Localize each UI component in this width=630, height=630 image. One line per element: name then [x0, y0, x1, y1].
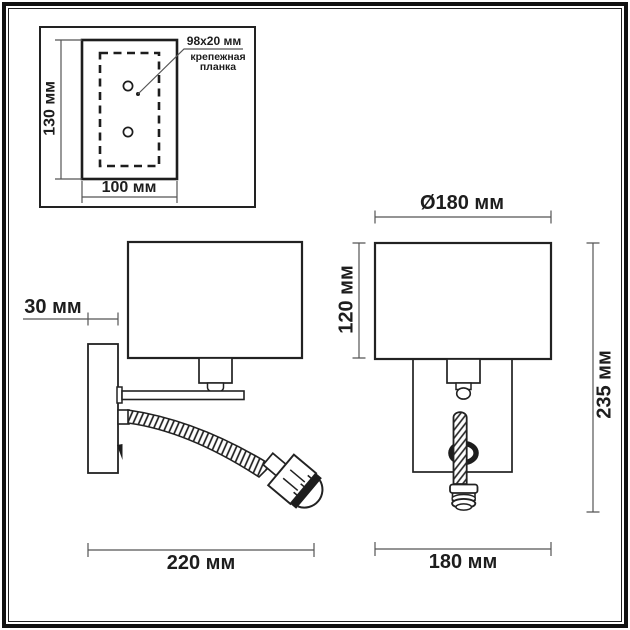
lamp-dimensional-drawing: 130 мм 100 мм 98x20 мм крепежная планка …	[0, 0, 630, 630]
socket-front	[447, 359, 480, 383]
mounting-plate-outline	[82, 40, 177, 179]
front-view-drawing	[375, 243, 551, 510]
shade-height-dimension-label: 120 мм	[337, 240, 358, 360]
gooseneck-rod-front	[454, 412, 467, 484]
arm-bar-side	[122, 391, 244, 400]
socket-side	[199, 358, 232, 383]
plate-depth-dimension-label: 30 мм	[0, 297, 113, 318]
switch-front	[457, 388, 471, 399]
total-height-dimension-label: 235 мм	[595, 325, 616, 445]
gooseneck-side	[128, 410, 271, 477]
wall-plate-side	[88, 344, 118, 473]
lampshade-side	[128, 242, 302, 358]
led-head-front	[450, 485, 478, 511]
total-depth-dimension-label: 220 мм	[141, 553, 261, 574]
lampshade-front	[375, 243, 551, 359]
shade-diameter-dimension-label: Ø180 мм	[402, 193, 522, 214]
side-view-drawing	[88, 242, 331, 516]
inset-width-dimension-label: 100 мм	[84, 180, 174, 197]
reading-head-side	[255, 444, 331, 517]
screw-hole-bottom	[123, 127, 132, 136]
mounting-bar-size-label: 98x20 мм	[174, 34, 254, 48]
front-width-dimension-label: 180 мм	[403, 552, 523, 573]
mounting-bar-name-label: крепежная планка	[183, 53, 253, 72]
inset-height-dimension-label: 130 мм	[43, 63, 60, 153]
screw-hole-top	[123, 81, 132, 90]
